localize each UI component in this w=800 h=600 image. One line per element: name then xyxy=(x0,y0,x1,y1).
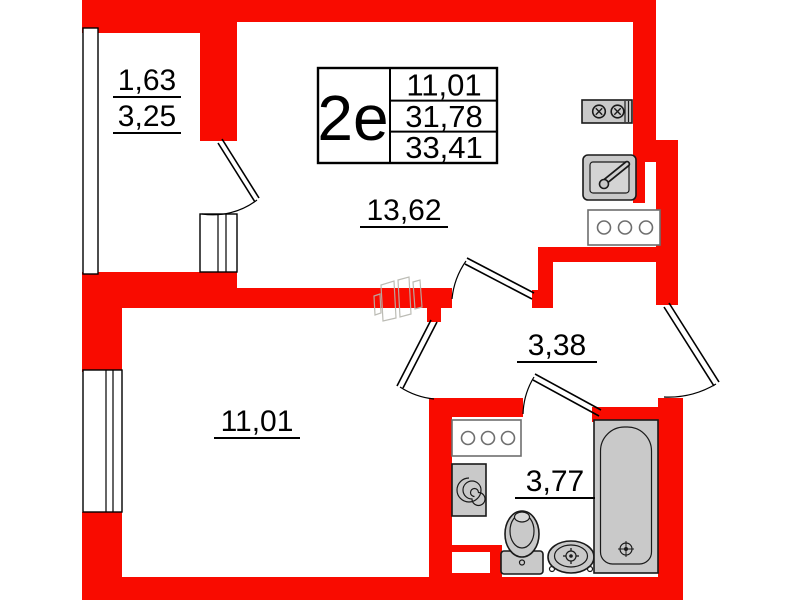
kitchen-door xyxy=(452,258,534,299)
hallway-area-label: 3,38 xyxy=(528,329,586,362)
info-area-apartment: 31,78 xyxy=(405,99,483,134)
right-outer-wall-lower xyxy=(658,398,683,600)
bedroom-door xyxy=(397,320,437,399)
wall-niche-bathroom xyxy=(452,552,490,573)
floor-plan: 1,63 3,25 13,62 11,01 3,38 3,77 2e 11,01… xyxy=(0,0,800,600)
bathroom-area-label: 3,77 xyxy=(526,465,584,498)
toilet-icon xyxy=(501,511,543,574)
bathroom-door xyxy=(523,374,601,416)
balcony-area-upper: 1,63 xyxy=(118,64,176,97)
apartment-info-box: 2e 11,01 31,78 33,41 xyxy=(317,68,497,166)
kitchen-se-stub xyxy=(538,247,553,297)
bathtub-icon xyxy=(594,420,658,573)
kitchen-counter-icon xyxy=(588,210,660,245)
bedroom-top-wall xyxy=(122,288,452,308)
floor-plan-page: 1,63 3,25 13,62 11,01 3,38 3,77 2e 11,01… xyxy=(0,0,800,600)
bathroom-top-wall xyxy=(429,398,523,417)
apartment-type-label: 2e xyxy=(317,82,388,154)
bathroom-counter-icon xyxy=(452,420,521,456)
bedroom-left-wall-upper xyxy=(82,302,122,372)
entrance-door xyxy=(664,303,719,397)
balcony-glazing xyxy=(83,28,98,274)
stove-icon xyxy=(582,100,632,123)
balcony-area-lower: 3,25 xyxy=(118,100,176,133)
wall-niche-kitchen xyxy=(645,162,656,203)
kitchen-area-label: 13,62 xyxy=(366,194,441,227)
balcony-door-window xyxy=(200,214,237,272)
bottom-wall xyxy=(82,577,683,600)
hall-bedroom-jamb xyxy=(427,308,441,322)
info-area-total: 33,41 xyxy=(405,130,483,165)
top-wall xyxy=(82,0,656,33)
kitchen-sink-icon xyxy=(583,155,636,200)
bedroom-area-label: 11,01 xyxy=(221,405,294,438)
wash-basin-icon xyxy=(548,541,594,573)
balcony-kitchen-divider-wall xyxy=(200,0,237,141)
balcony-door xyxy=(202,139,259,215)
washing-machine-icon xyxy=(452,464,486,516)
info-area-living: 11,01 xyxy=(406,68,481,103)
bedroom-window xyxy=(83,370,122,512)
